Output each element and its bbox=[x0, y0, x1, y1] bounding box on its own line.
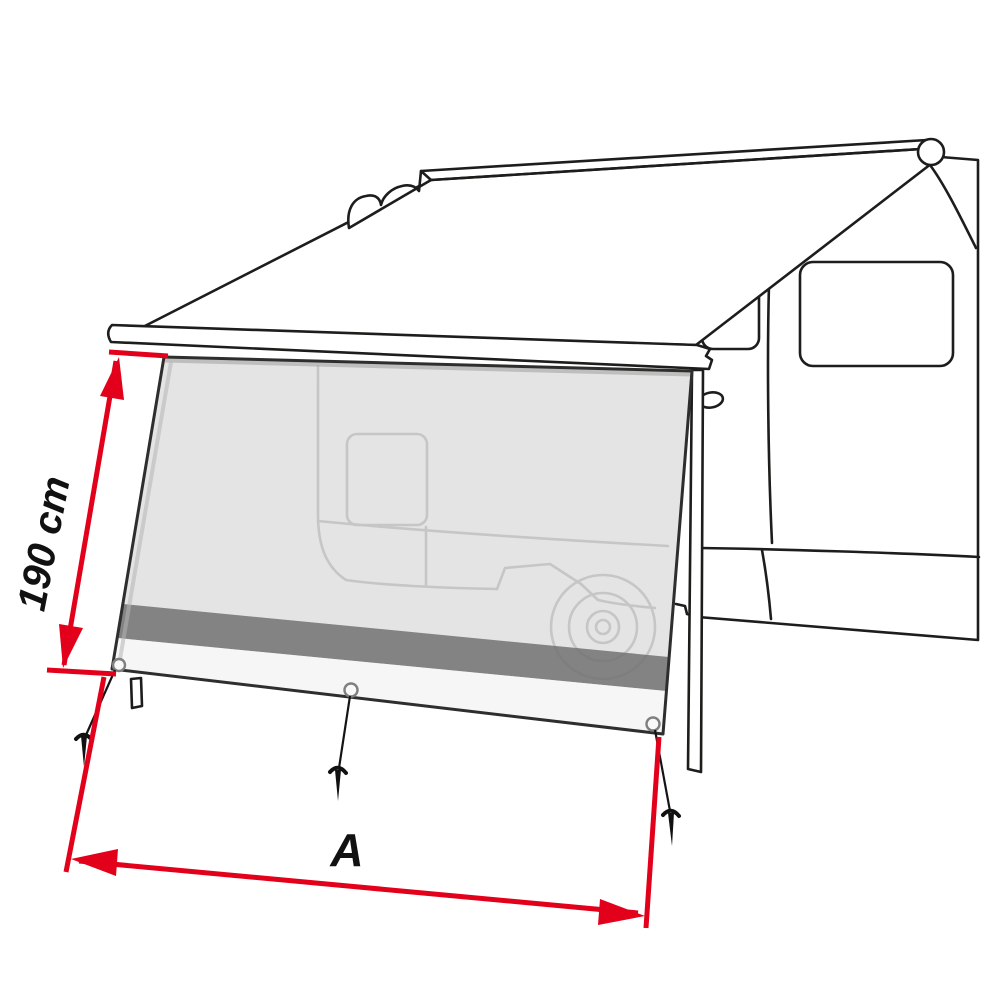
van-body-crease bbox=[700, 548, 979, 557]
product-diagram: 190 cm A bbox=[0, 0, 1000, 1000]
guy-line-middle bbox=[339, 696, 350, 768]
support-leg-left-tip bbox=[131, 678, 142, 708]
grommet-right bbox=[647, 718, 660, 731]
side-shade-panel bbox=[112, 357, 692, 734]
extension-line-right bbox=[646, 737, 659, 928]
arrowhead-up bbox=[100, 357, 124, 400]
peg-middle bbox=[330, 768, 346, 801]
peg-shaft bbox=[335, 770, 341, 801]
peg-shaft bbox=[668, 813, 674, 846]
awning-side-panel-diagram: 190 cm A bbox=[0, 0, 1000, 1000]
arrowhead-down bbox=[59, 624, 83, 668]
grommet-left bbox=[113, 659, 125, 671]
support-leg-right bbox=[688, 370, 703, 772]
van-door-bottom-curve bbox=[762, 550, 771, 619]
van-door-front-edge bbox=[768, 284, 772, 543]
arrowhead-left bbox=[71, 849, 118, 876]
extension-tick-top bbox=[109, 352, 168, 356]
van-side-window bbox=[800, 262, 953, 366]
peg-right bbox=[663, 811, 679, 846]
van-rear-corner-curve bbox=[930, 165, 976, 248]
extension-tick-bottom bbox=[47, 670, 116, 674]
extension-line-left bbox=[66, 677, 104, 872]
cassette-end-cap bbox=[918, 139, 944, 165]
grommet-middle bbox=[345, 684, 358, 697]
width-dimension-label: A bbox=[329, 824, 363, 876]
height-dimension-label: 190 cm bbox=[10, 473, 79, 615]
